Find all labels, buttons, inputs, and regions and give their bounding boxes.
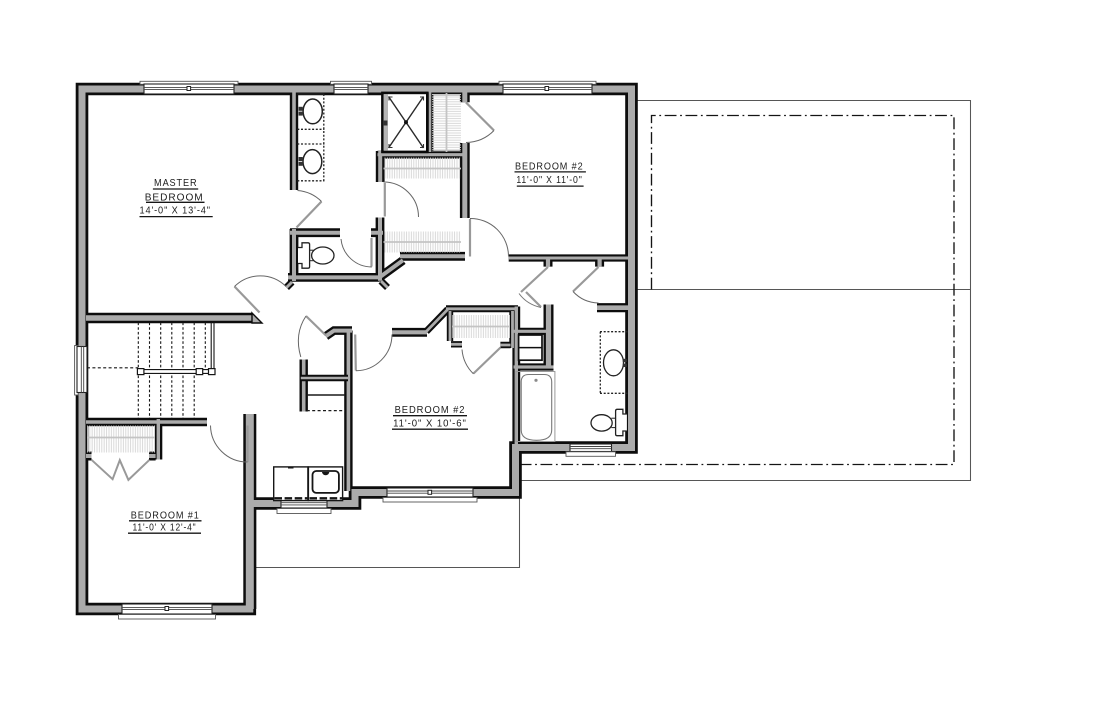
svg-text:11'-0' X 12'-4": 11'-0' X 12'-4"	[133, 523, 197, 534]
svg-text:11'-0" X 11'-0": 11'-0" X 11'-0"	[516, 175, 582, 186]
svg-text:BEDROOM #2: BEDROOM #2	[515, 161, 584, 172]
svg-text:11'-0" X 10'-6": 11'-0" X 10'-6"	[393, 419, 467, 430]
svg-text:14'-0" X 13'-4": 14'-0" X 13'-4"	[139, 206, 211, 217]
svg-text:BEDROOM #1: BEDROOM #1	[131, 511, 200, 522]
svg-text:BEDROOM #2: BEDROOM #2	[395, 405, 466, 416]
svg-text:MASTER: MASTER	[154, 178, 198, 189]
